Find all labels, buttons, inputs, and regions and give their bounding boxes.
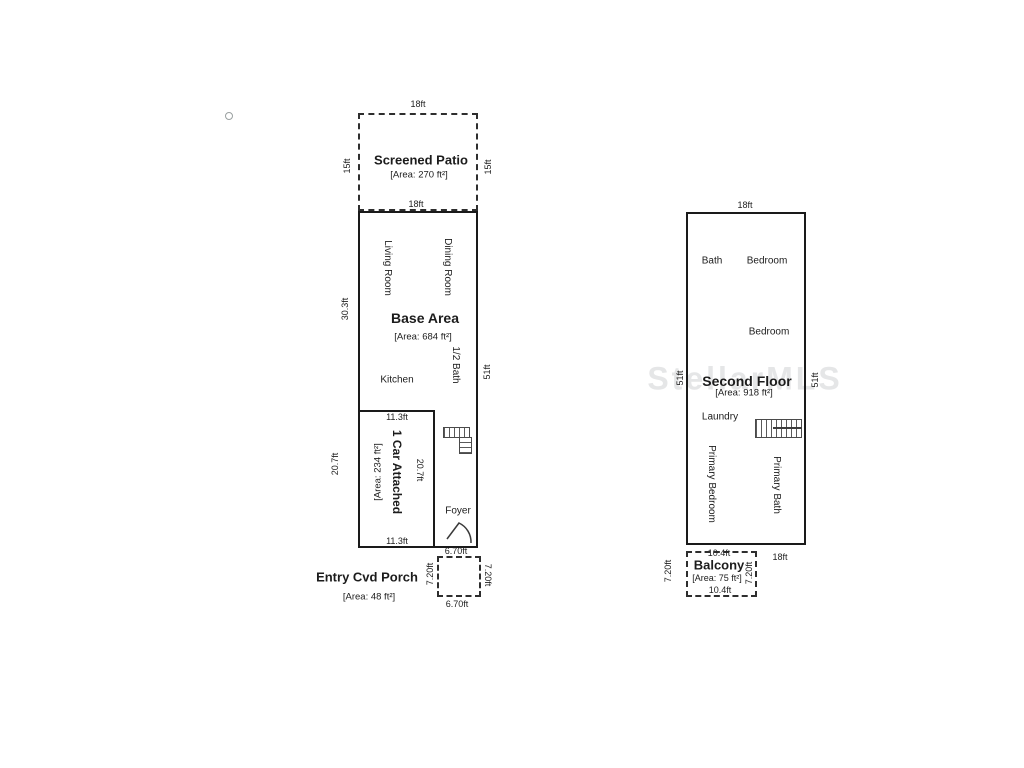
second-floor-area: [Area: 918 ft²] xyxy=(715,389,773,400)
balcony-dim-left: 7.20ft xyxy=(663,560,673,583)
door-swing-icon xyxy=(444,517,476,547)
laundry-label: Laundry xyxy=(702,411,738,423)
second-dim-bottom: 18ft xyxy=(772,552,787,562)
patio-dim-top: 18ft xyxy=(410,99,425,109)
patio-dim-right: 15ft xyxy=(483,159,493,174)
second-dim-left: 51ft xyxy=(675,370,685,385)
entry-porch-outline xyxy=(437,556,481,597)
patio-dim-left: 15ft xyxy=(342,158,352,173)
balcony-dim-bottom: 10.4ft xyxy=(709,585,732,595)
base-dim-right: 51ft xyxy=(482,364,492,379)
primary-bath-label: Primary Bath xyxy=(770,456,782,514)
garage-area: [Area: 234 ft²] xyxy=(374,443,385,501)
staircase-rail xyxy=(773,427,802,429)
base-dim-left-lower: 20.7ft xyxy=(330,453,340,476)
dining-room-label: Dining Room xyxy=(441,238,453,296)
garage-dim-inner: 20.7ft xyxy=(415,459,425,482)
second-dim-top: 18ft xyxy=(737,200,752,210)
kitchen-label: Kitchen xyxy=(380,374,413,386)
entry-porch-title: Entry Cvd Porch xyxy=(316,571,418,586)
floor-plan-canvas: StellarMLS 18ft Screened Patio [Area: 27… xyxy=(0,0,1024,768)
base-dim-left-upper: 30.3ft xyxy=(340,298,350,321)
entry-porch-area: [Area: 48 ft²] xyxy=(343,593,395,604)
living-room-label: Living Room xyxy=(381,240,393,296)
bedroom-2-label: Bedroom xyxy=(749,326,790,338)
screened-patio-area: [Area: 270 ft²] xyxy=(390,171,448,182)
balcony-dim-right: 7.20ft xyxy=(744,562,754,585)
balcony-area: [Area: 75 ft²] xyxy=(692,573,742,583)
bedroom-1-label: Bedroom xyxy=(747,255,788,267)
porch-dim-right: 7.20ft xyxy=(483,564,493,587)
half-bath-label: 1/2 Bath xyxy=(449,346,461,383)
staircase-icon xyxy=(459,437,472,454)
porch-dim-bottom: 6.70ft xyxy=(446,599,469,609)
base-area-title: Base Area xyxy=(391,310,459,326)
base-area-area: [Area: 684 ft²] xyxy=(394,333,452,344)
garage-dim-top: 11.3ft xyxy=(386,412,408,422)
foyer-label: Foyer xyxy=(445,505,471,517)
porch-dim-top: 6.70ft xyxy=(445,546,468,556)
primary-bedroom-label: Primary Bedroom xyxy=(705,445,717,523)
patio-dim-bottom: 18ft xyxy=(408,199,423,209)
balcony-title: Balcony xyxy=(694,559,745,574)
screened-patio-title: Screened Patio xyxy=(374,154,468,169)
second-dim-right: 51ft xyxy=(810,372,820,387)
porch-dim-left: 7.20ft xyxy=(425,563,435,586)
bath-label: Bath xyxy=(702,255,723,267)
garage-dim-bottom: 11.3ft xyxy=(386,536,408,546)
garage-title: 1 Car Attached xyxy=(389,430,403,514)
watermark-ring xyxy=(225,112,233,120)
